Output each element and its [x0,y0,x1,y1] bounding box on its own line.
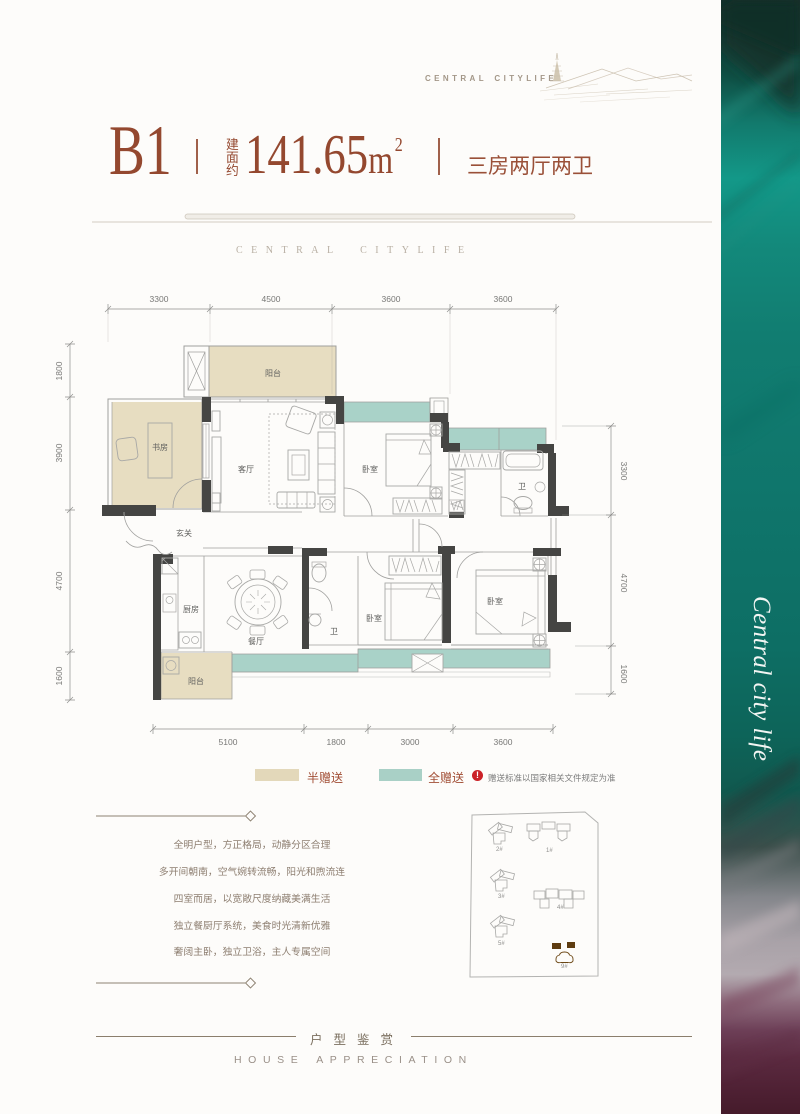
svg-text:2#: 2# [496,847,503,853]
svg-text:4700: 4700 [54,571,64,590]
svg-text:5100: 5100 [219,737,238,747]
svg-text:卫: 卫 [518,482,526,491]
svg-text:1600: 1600 [54,666,64,685]
svg-text:3300: 3300 [150,294,169,304]
svg-text:1600: 1600 [619,665,629,684]
svg-text:1800: 1800 [54,361,64,380]
svg-text:3900: 3900 [54,443,64,462]
svg-text:Central city life: Central city life [748,596,775,761]
svg-text:卧室: 卧室 [362,464,378,474]
svg-text:卫: 卫 [330,627,338,636]
svg-text:3600: 3600 [382,294,401,304]
svg-text:书房: 书房 [152,442,168,452]
svg-text:3000: 3000 [401,737,420,747]
svg-text:9#: 9# [561,964,568,970]
svg-text:3#: 3# [498,894,505,900]
svg-text:餐厅: 餐厅 [248,637,264,646]
svg-text:3300: 3300 [619,462,629,481]
svg-text:阳台: 阳台 [188,676,204,686]
svg-text:3600: 3600 [494,294,513,304]
svg-text:5#: 5# [498,941,505,947]
svg-text:阳台: 阳台 [265,368,281,378]
svg-text:卧室: 卧室 [487,596,503,606]
svg-text:厨房: 厨房 [183,604,199,614]
svg-text:客厅: 客厅 [238,464,254,474]
svg-text:1#: 1# [546,848,553,854]
svg-text:1800: 1800 [327,737,346,747]
svg-text:4#: 4# [557,905,564,911]
svg-text:3600: 3600 [494,737,513,747]
svg-text:4500: 4500 [262,294,281,304]
svg-text:4700: 4700 [619,574,629,593]
svg-text:玄关: 玄关 [176,528,192,538]
svg-text:卧室: 卧室 [366,613,382,623]
